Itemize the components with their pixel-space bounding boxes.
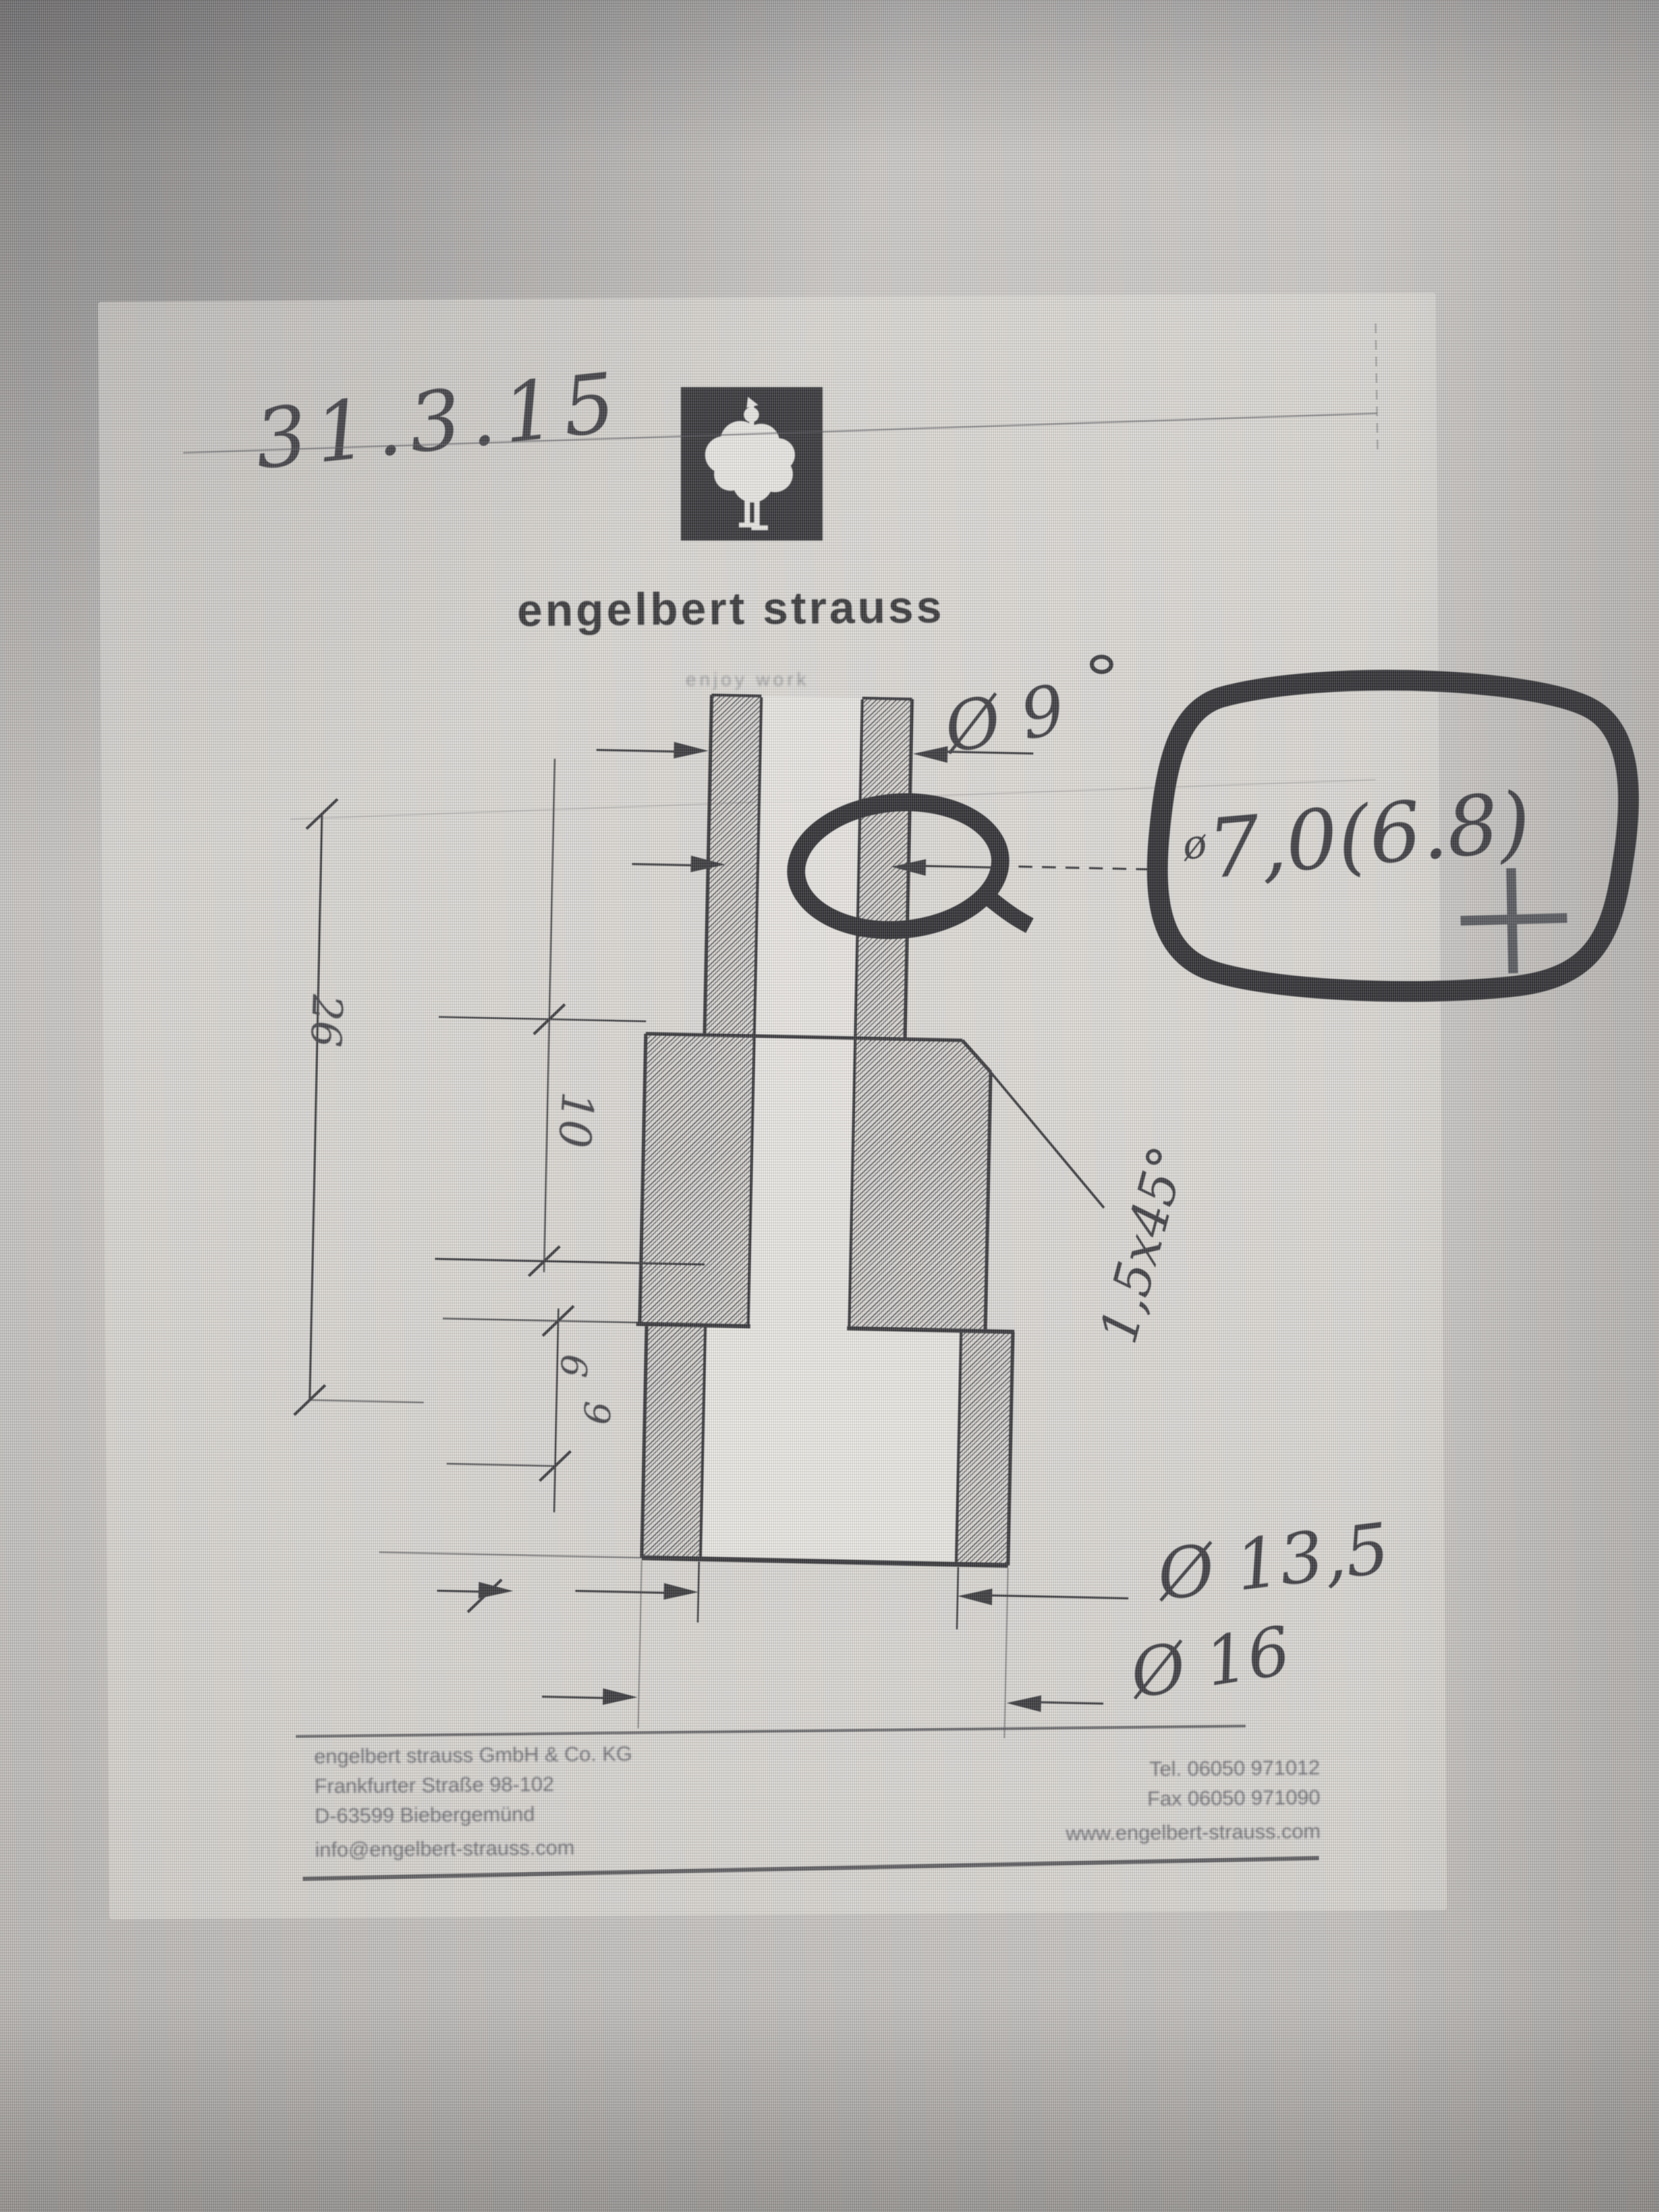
dim-body-length: 10 bbox=[547, 1090, 603, 1150]
photographed-fax-sheet: 31.3.15 engelbert strauss bbox=[0, 0, 1659, 2212]
footer-fax: Fax 06050 971090 bbox=[1002, 1783, 1320, 1815]
dim-total-length: 26 bbox=[301, 994, 351, 1049]
plus-mark-icon bbox=[1461, 868, 1567, 973]
technical-drawing bbox=[0, 0, 1659, 2212]
footer-email: info@engelbert-strauss.com bbox=[315, 1833, 633, 1865]
footer-contact-block: Tel. 06050 971012 Fax 06050 971090 www.e… bbox=[1002, 1753, 1320, 1849]
footer-website: www.engelbert-strauss.com bbox=[1002, 1817, 1320, 1849]
dim-step-small: 6 bbox=[551, 1353, 594, 1379]
footer-city: D-63599 Biebergemünd bbox=[315, 1799, 633, 1831]
bore-void bbox=[748, 696, 862, 1329]
footer-street: Frankfurter Straße 98-102 bbox=[315, 1769, 633, 1801]
counterbore-void bbox=[700, 1325, 961, 1564]
footer-company: engelbert strauss GmbH & Co. KG bbox=[314, 1739, 632, 1772]
footer-tel: Tel. 06050 971012 bbox=[1002, 1753, 1320, 1785]
footer-address-block: engelbert strauss GmbH & Co. KG Frankfur… bbox=[314, 1739, 633, 1865]
dim-step-large: 9 bbox=[574, 1400, 617, 1426]
